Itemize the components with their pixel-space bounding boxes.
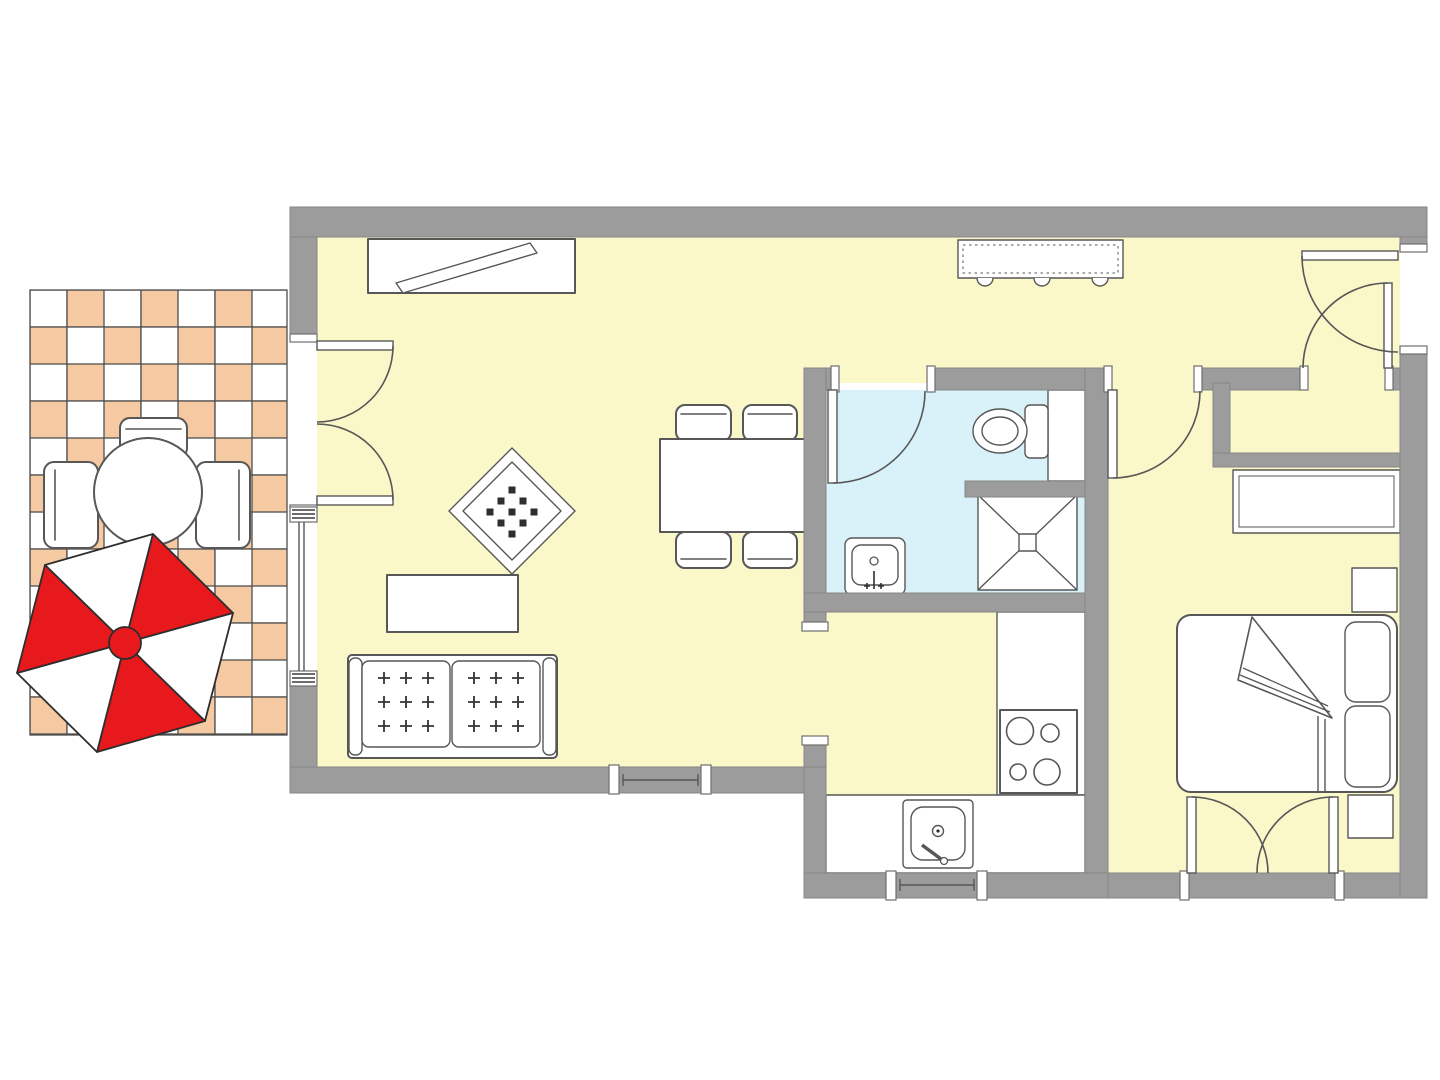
terrace-round-table (94, 438, 202, 546)
sofa (348, 655, 557, 758)
nightstand (1348, 795, 1393, 838)
wall-bedroom-left (1085, 368, 1108, 873)
wall-left-lower (290, 686, 317, 767)
floor-plan-drawing (0, 0, 1440, 1080)
stove-icon (1000, 710, 1077, 793)
dining-chair (676, 532, 731, 568)
dining-chair (743, 532, 797, 568)
nightstand (1352, 568, 1397, 612)
pillow (1345, 706, 1390, 787)
dining-table (660, 439, 808, 532)
living-left-window (290, 507, 317, 686)
toilet-niche (1048, 390, 1085, 481)
terrace-chair (44, 462, 98, 548)
wall-right (1400, 352, 1427, 898)
pillow (1345, 622, 1390, 702)
wall-toilet-partition (965, 481, 1085, 497)
shower-drain (1019, 534, 1036, 551)
wardrobe (1233, 470, 1400, 533)
shower-icon (978, 495, 1077, 590)
terrace (17, 290, 287, 752)
washbasin-icon (845, 538, 905, 595)
kitchen-sink-icon (903, 800, 973, 868)
hall-sideboard (958, 240, 1123, 286)
wall-left-upper (290, 237, 317, 340)
wall-bedroom-bottom (1108, 873, 1427, 898)
hall-furniture (958, 240, 1123, 286)
tv-sideboard (368, 239, 575, 293)
parasol-pole (109, 627, 141, 659)
wall-bath-left (804, 368, 826, 627)
wall-closet-horizontal (1213, 453, 1400, 467)
dining-chair (676, 405, 731, 441)
wall-top (290, 207, 1427, 237)
floor-plan-page (0, 0, 1440, 1080)
sofa-armrest (543, 658, 556, 755)
wall-living-bottom (290, 767, 826, 793)
sofa-armrest (349, 658, 362, 755)
coffee-table (387, 575, 518, 632)
wall-bath-bottom (804, 593, 1085, 612)
terrace-chair (196, 462, 250, 548)
wall-bath-top-b (933, 368, 1108, 390)
dining-chair (743, 405, 797, 441)
wall-kitchen-left-step (804, 767, 826, 873)
double-bed (1177, 615, 1397, 792)
